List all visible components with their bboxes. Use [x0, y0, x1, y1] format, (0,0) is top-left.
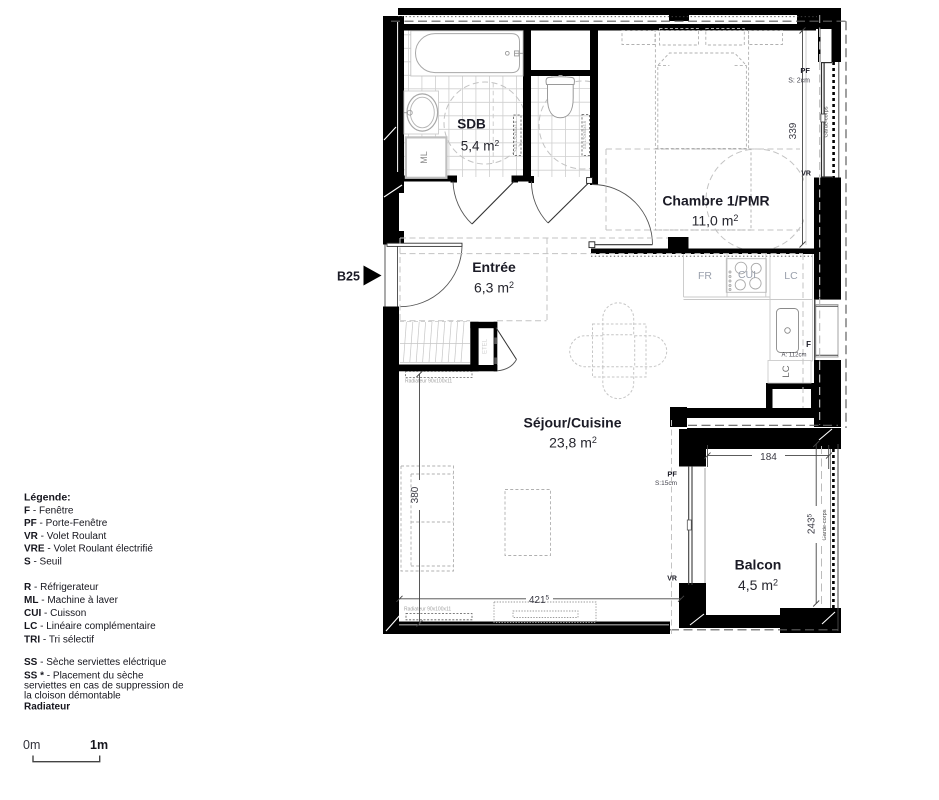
svg-text:Radiateur: Radiateur [24, 701, 70, 712]
svg-text:la cloison démontable: la cloison démontable [24, 690, 121, 701]
svg-text:Séjour/Cuisine: Séjour/Cuisine [523, 415, 621, 431]
svg-text:CUI - Cuisson: CUI - Cuisson [24, 608, 86, 619]
svg-text:VR: VR [667, 576, 677, 583]
svg-text:VRE - Volet Roulant électrifié: VRE - Volet Roulant électrifié [24, 544, 153, 555]
svg-text:S: 2cm: S: 2cm [788, 78, 810, 85]
svg-text:SS 170x60x4.6: SS 170x60x4.6 [513, 120, 518, 149]
svg-text:Radiateur 90x100x11: Radiateur 90x100x11 [405, 379, 452, 385]
svg-text:FR: FR [698, 270, 712, 282]
svg-text:339: 339 [788, 122, 799, 139]
svg-text:LC: LC [781, 365, 792, 377]
svg-text:LC - Linéaire complémentaire: LC - Linéaire complémentaire [24, 621, 156, 632]
svg-text:SS 170x60x4.6: SS 170x60x4.6 [582, 120, 587, 149]
svg-text:Balcon: Balcon [735, 557, 782, 573]
svg-text:TRI - Tri sélectif: TRI - Tri sélectif [24, 635, 94, 646]
svg-text:VR: VR [801, 171, 811, 178]
svg-text:6,3 m2: 6,3 m2 [474, 280, 514, 296]
svg-text:B25: B25 [337, 270, 360, 284]
svg-text:ML: ML [419, 151, 429, 164]
svg-text:S - Seuil: S - Seuil [24, 557, 62, 568]
svg-text:CUI: CUI [738, 269, 756, 281]
svg-text:R - Réfrigerateur: R - Réfrigerateur [24, 582, 99, 593]
svg-text:380: 380 [410, 486, 421, 503]
svg-text:Légende:: Légende: [24, 492, 71, 504]
svg-text:PF - Porte-Fenêtre: PF - Porte-Fenêtre [24, 518, 108, 529]
svg-text:VR - Volet Roulant: VR - Volet Roulant [24, 531, 107, 542]
svg-text:5,4 m2: 5,4 m2 [461, 138, 500, 154]
svg-text:ML - Machine à laver: ML - Machine à laver [24, 595, 119, 606]
svg-text:ETEL: ETEL [483, 338, 489, 354]
svg-text:1m: 1m [90, 738, 108, 752]
svg-text:PF: PF [800, 66, 810, 75]
svg-text:Garde-corps: Garde-corps [822, 509, 828, 540]
svg-text:184: 184 [760, 452, 777, 463]
svg-text:Radiateur 90x100x11: Radiateur 90x100x11 [404, 607, 451, 613]
svg-text:S:15cm: S:15cm [655, 480, 677, 487]
svg-text:0m: 0m [23, 738, 40, 752]
svg-text:A: 112cm: A: 112cm [782, 353, 807, 359]
svg-text:SS - Sèche serviettes eléctriq: SS - Sèche serviettes eléctrique [24, 657, 167, 668]
svg-text:4,5 m2: 4,5 m2 [738, 577, 778, 593]
svg-text:Entrée: Entrée [472, 259, 516, 275]
svg-text:Chambre 1/PMR: Chambre 1/PMR [662, 193, 769, 209]
svg-text:F: F [806, 340, 811, 349]
svg-text:SDB: SDB [457, 117, 486, 132]
svg-text:LC: LC [784, 270, 798, 282]
svg-text:11,0 m2: 11,0 m2 [692, 213, 739, 229]
svg-text:23,8 m2: 23,8 m2 [549, 435, 597, 451]
svg-text:PF: PF [667, 470, 677, 479]
svg-text:F - Fenêtre: F - Fenêtre [24, 505, 74, 516]
svg-text:Garde-corps: Garde-corps [824, 106, 830, 137]
